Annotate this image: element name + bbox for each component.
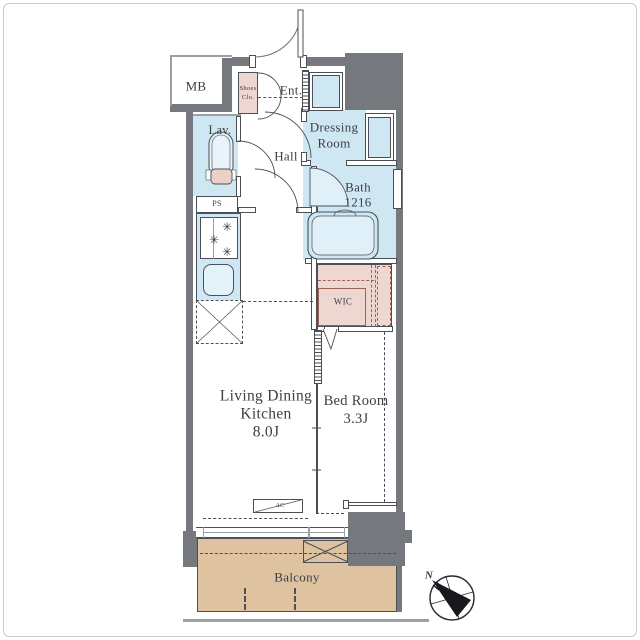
label-bath-size: 1216: [344, 196, 371, 209]
wic-inner-box: [318, 288, 366, 326]
label-dressing-1: Dressing: [310, 121, 359, 134]
label-mb: MB: [186, 80, 207, 93]
window-dashline-ldk: [203, 518, 308, 519]
label-bedroom: Bed Room: [324, 394, 389, 409]
balcony-tick-2: [294, 588, 296, 610]
window-dashline-bedroom: [316, 513, 344, 514]
label-pipe-space: PS: [212, 200, 222, 208]
label-lavatory: Lav.: [209, 124, 232, 137]
burner-icon: ✳: [209, 233, 219, 247]
wall-lav-lower: [236, 176, 241, 197]
burner-icon: ✳: [222, 220, 232, 234]
label-ac: AC: [276, 503, 285, 510]
floorplan-page: ✳ ✳ ✳ MB Ent. Shoes Clo. Dressing Room L…: [0, 0, 640, 640]
door-jamb-left: [249, 55, 256, 68]
jamb-bedroom-bottom: [343, 500, 349, 509]
wall-hall-dressing-lower: [301, 152, 307, 162]
wall-balcony-right: [397, 538, 402, 612]
fridge-space-box: [196, 300, 243, 344]
label-hall: Hall: [274, 150, 298, 163]
label-bedroom-size: 3.3J: [344, 412, 369, 427]
mb-outline-left: [170, 55, 172, 106]
label-ldk-1: Living Dining: [220, 388, 312, 404]
wic-divider-2: [375, 265, 376, 327]
wic-divider-1: [371, 265, 372, 327]
wall-bath-wic: [305, 258, 397, 264]
partition-sliding-door: [316, 384, 318, 513]
window-tick-2: [308, 527, 310, 538]
window-tick-3: [344, 527, 345, 538]
label-shoes-closet-2: Clo.: [242, 95, 254, 102]
wall-mb-bottom: [170, 104, 232, 112]
balcony-dashed-line: [200, 553, 396, 554]
label-ldk-2: Kitchen: [240, 406, 291, 422]
wall-ldk-wetarea: [311, 166, 317, 330]
label-wic: WIC: [334, 298, 352, 307]
partition-pocket: [314, 330, 322, 384]
window-mid-rail: [203, 532, 344, 533]
balcony-service-box: [303, 540, 348, 563]
wall-balcony-left-stub: [183, 531, 197, 567]
kitchen-sink: [203, 264, 234, 296]
wall-left: [186, 112, 193, 533]
washer-space-inner: [368, 117, 391, 158]
entrance-cabinet-rail: [302, 70, 309, 112]
bath-counter-box: [393, 169, 402, 209]
label-entrance: Ent.: [280, 84, 303, 97]
bedroom-dashed-line: [384, 332, 385, 502]
wall-top-right: [306, 57, 345, 66]
label-ldk-size: 8.0J: [253, 424, 280, 440]
label-shoes-closet-1: Shoes: [239, 86, 256, 93]
label-balcony: Balcony: [274, 571, 319, 584]
label-dressing-2: Room: [318, 137, 351, 150]
wall-lav-top: [193, 114, 241, 116]
wic-pipe-line: [318, 280, 374, 281]
label-bath: Bath: [345, 181, 371, 194]
wall-bedroom-bottom: [345, 502, 397, 506]
mb-outline-top: [170, 55, 232, 57]
wall-tab-se: [405, 530, 412, 543]
door-jamb-right: [300, 55, 307, 68]
wall-corner-block-ne: [345, 53, 403, 110]
balcony-tick-1: [244, 588, 246, 610]
kitchen-edge-line: [243, 301, 313, 302]
burner-icon: ✳: [222, 245, 232, 259]
wall-lav-upper: [236, 116, 241, 142]
wic-side-frame: [377, 266, 391, 326]
window-tick-1: [203, 527, 204, 538]
ground-line: [183, 619, 429, 622]
label-compass-north: N: [425, 571, 433, 582]
entrance-cabinet-inner: [312, 75, 340, 108]
